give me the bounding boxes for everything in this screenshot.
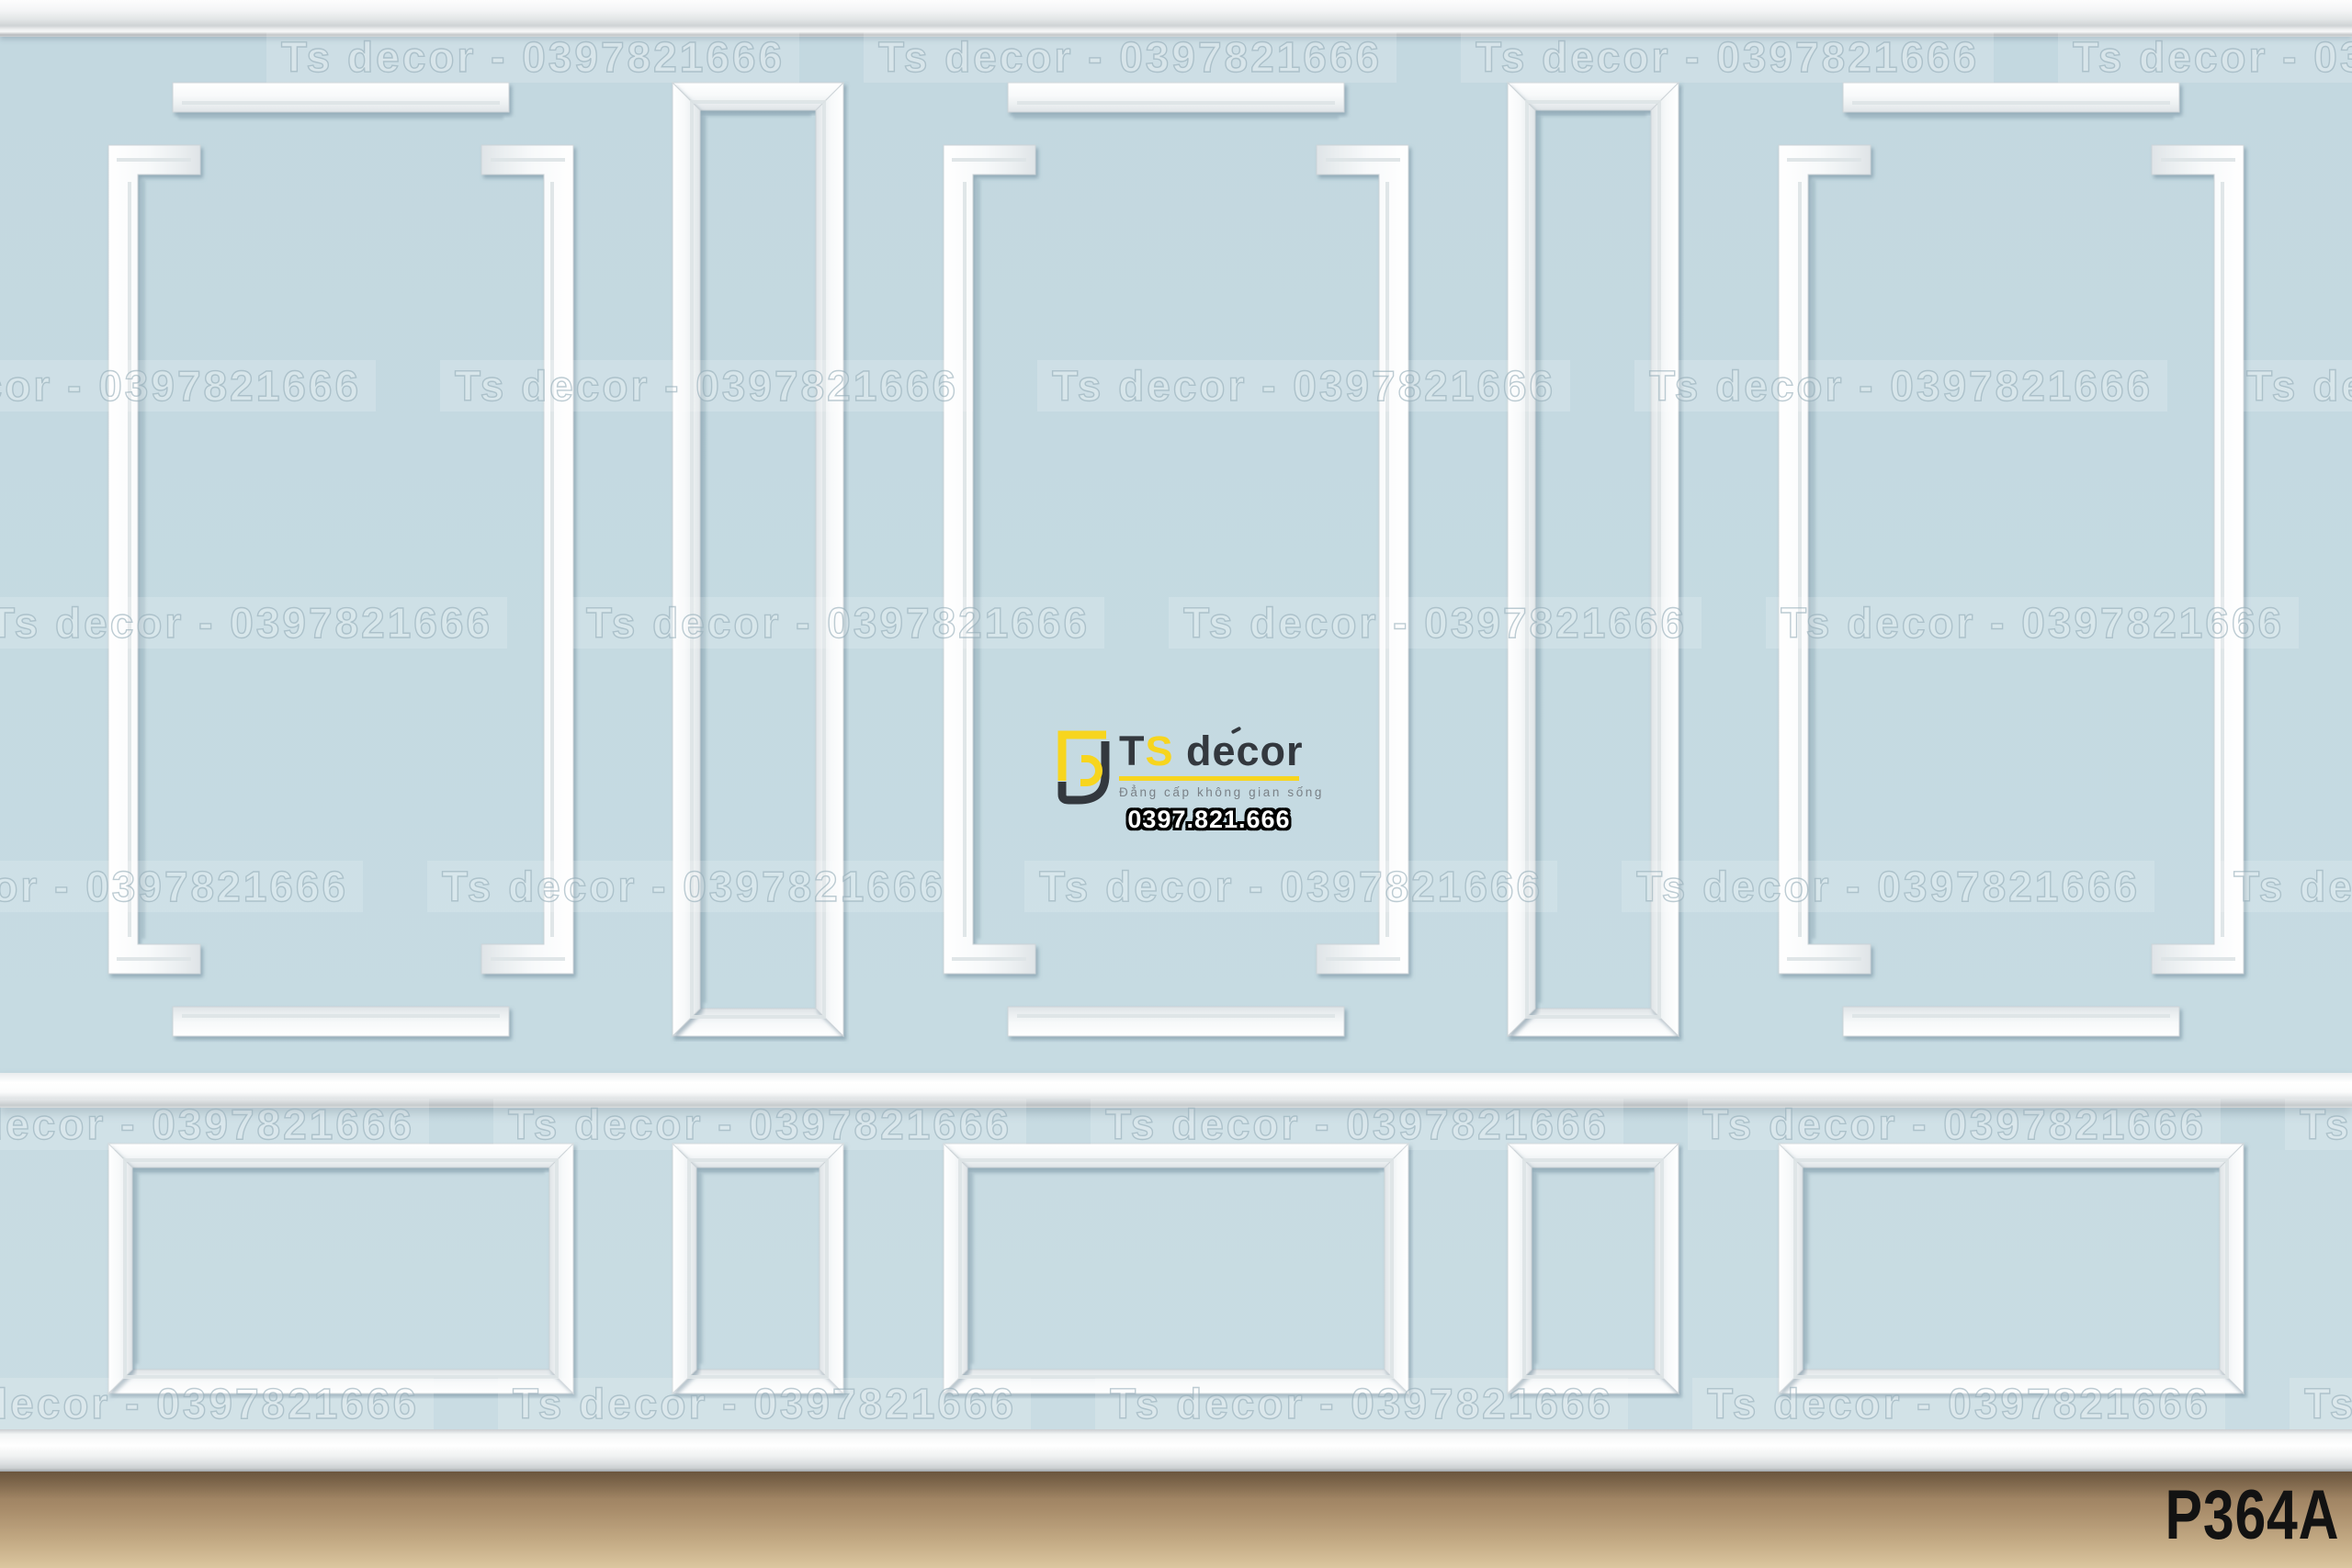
upper-panel-molding-2 bbox=[673, 83, 843, 1036]
lower-panel-molding-3 bbox=[944, 1144, 1408, 1393]
crown-molding bbox=[0, 0, 2352, 37]
lower-panel-molding-2 bbox=[673, 1144, 843, 1393]
lower-panel-molding-1 bbox=[108, 1144, 573, 1393]
brand-tagline: Đẳng cấp không gian sống bbox=[1119, 785, 1324, 799]
upper-panel-molding-3 bbox=[944, 83, 1408, 1036]
lower-panel-molding-5 bbox=[1779, 1144, 2244, 1393]
wood-floor: P364A bbox=[0, 1472, 2352, 1568]
wall-paneling-scene: P364A Ts decor - 0397821666Ts decor - 03… bbox=[0, 0, 2352, 1568]
upper-panel-molding-5 bbox=[1779, 83, 2244, 1036]
brand-logo: TS decor Đẳng cấp không gian sống 0397.8… bbox=[1053, 729, 1324, 834]
brand-name: TS decor bbox=[1119, 729, 1304, 773]
chair-rail-molding bbox=[0, 1073, 2352, 1108]
upper-panel-molding-4 bbox=[1508, 83, 1679, 1036]
product-code-label: P364A bbox=[2165, 1477, 2339, 1554]
upper-panel-molding-1 bbox=[108, 83, 573, 1036]
floor-shadow bbox=[0, 1472, 2352, 1499]
phone-number: 0397.821.666 bbox=[1119, 806, 1299, 834]
ts-decor-logo-icon bbox=[1053, 729, 1108, 814]
lower-panel-molding-4 bbox=[1508, 1144, 1679, 1393]
brand-underline bbox=[1119, 776, 1299, 781]
baseboard-molding bbox=[0, 1429, 2352, 1472]
